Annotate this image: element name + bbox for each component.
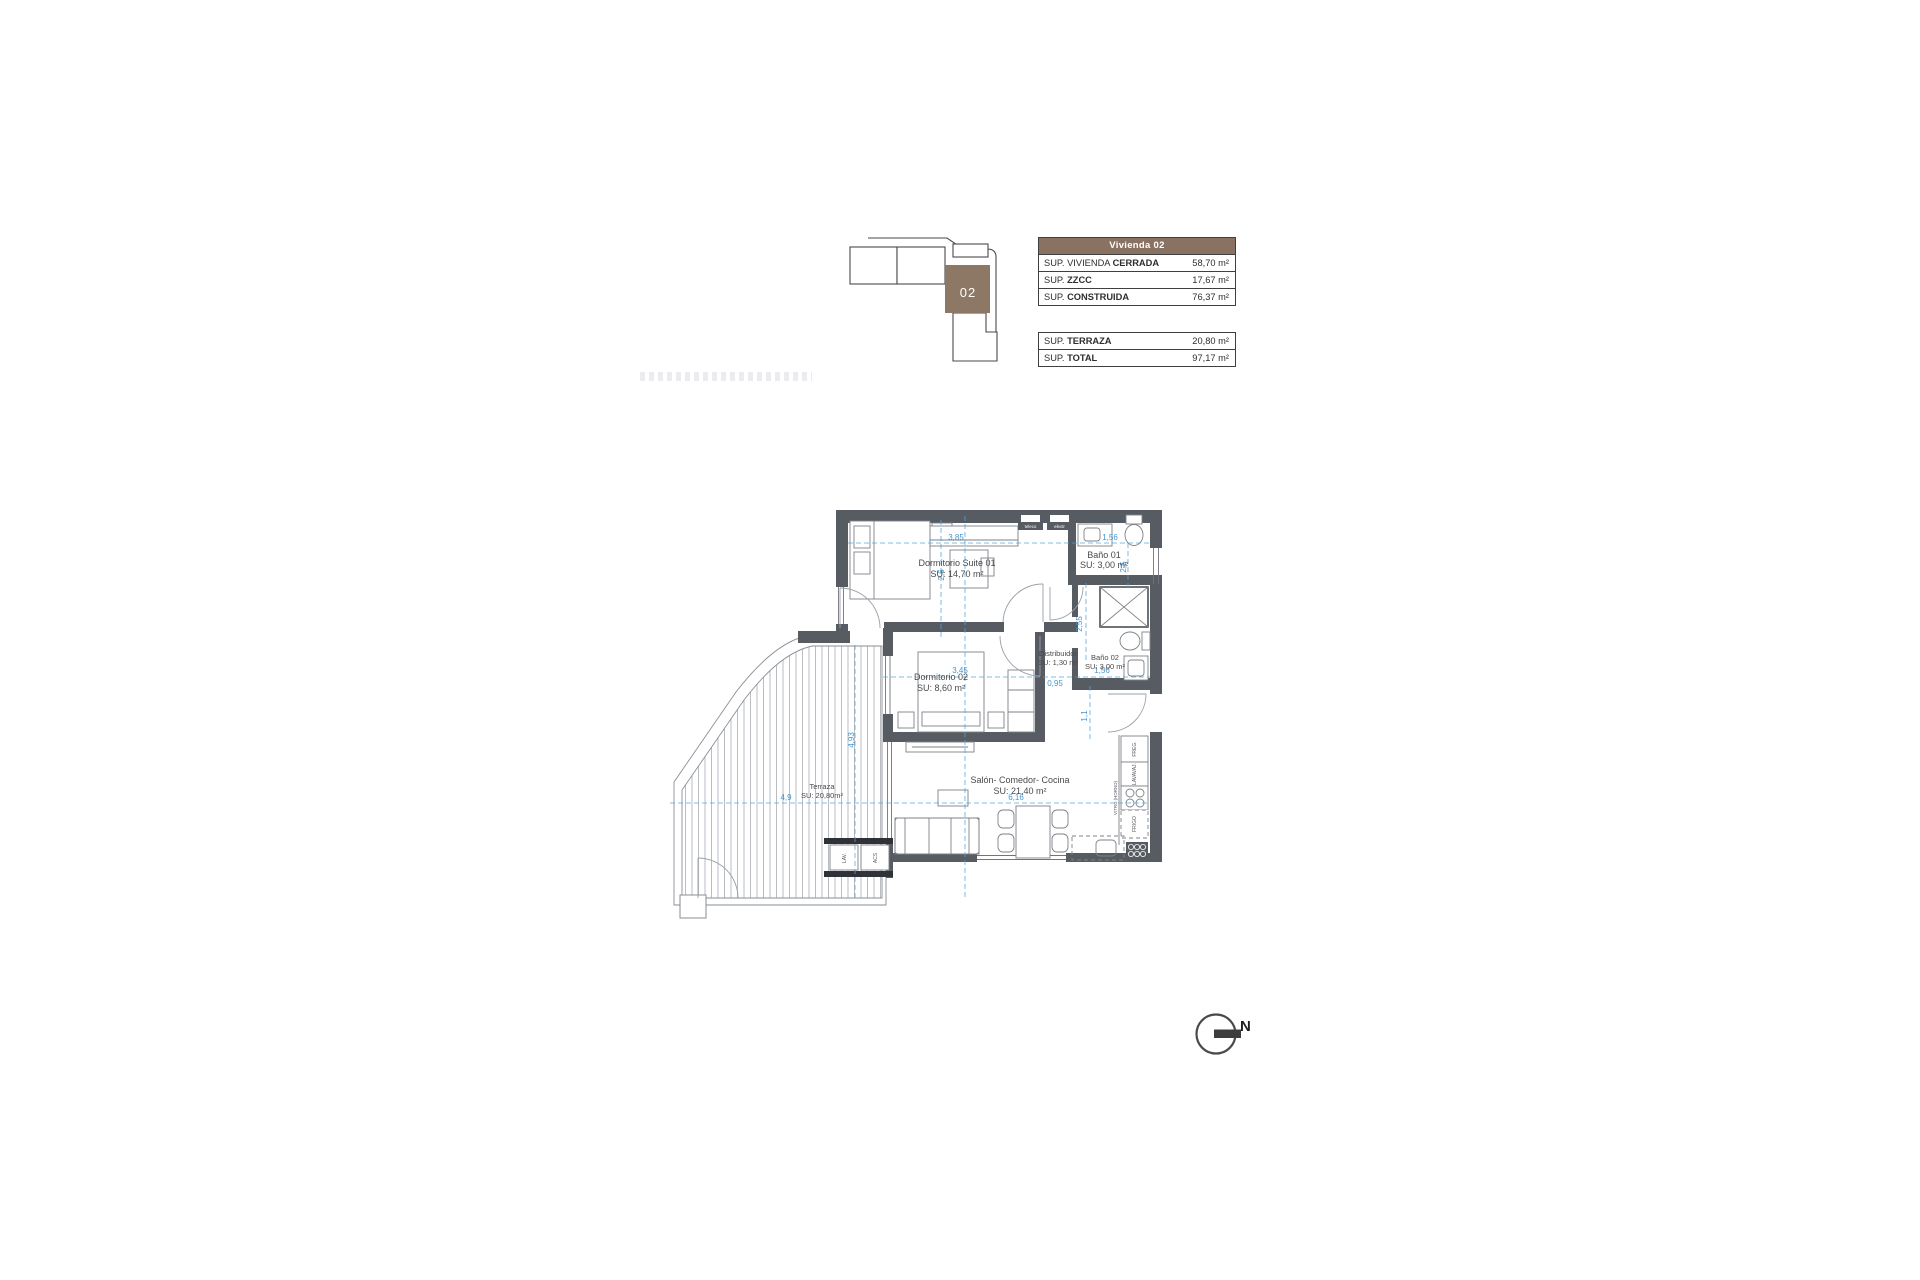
dimension-label: 4,93 [847, 732, 856, 748]
row-label: SUP. TERRAZA [1044, 336, 1112, 346]
svg-text:teleco: teleco [1025, 524, 1037, 529]
sink-bano2 [1124, 656, 1148, 680]
cabinet-electr: electr [1047, 513, 1072, 530]
svg-text:VITRO (HORNO): VITRO (HORNO) [1113, 781, 1118, 815]
dimension-label: 1,56 [1102, 533, 1118, 542]
row-value: 76,37 m² [1192, 292, 1229, 302]
room-area-suite: SU: 14,70 m² [930, 569, 983, 579]
toilet-bano1 [1125, 515, 1143, 546]
dimension-label: 3,85 [948, 533, 964, 542]
table-header: Vivienda 02 [1039, 238, 1235, 254]
table-row: SUP. CONSTRUIDA 76,37 m² [1039, 288, 1235, 305]
room-label-dorm2: Dormitorio 02 [914, 672, 968, 682]
cabinet-teleco: teleco [1018, 513, 1043, 530]
room-label-bano1: Baño 01 [1087, 550, 1121, 560]
terraza-step [680, 895, 706, 918]
row-label: SUP. VIVIENDA CERRADA [1044, 258, 1159, 268]
row-value: 20,80 m² [1192, 336, 1229, 346]
highlighted-unit-02: 02 [945, 265, 990, 313]
table-row: SUP. ZZCC 17,67 m² [1039, 271, 1235, 288]
floor-plan-sheet: 02 Vivienda 02 SUP. VIVIENDA CERRADA 58,… [0, 0, 1920, 1280]
dimension-label: 0,95 [1047, 679, 1063, 688]
room-area-bano2: SU: 3,00 m² [1085, 662, 1126, 671]
wardrobe-dorm2 [1008, 670, 1034, 732]
svg-text:electr: electr [1054, 524, 1065, 529]
kitchen-units: FREG. LAVAVAJ. VITRO (HORNO) FRIGO [1072, 735, 1148, 860]
room-label-salon: Salón- Comedor- Cocina [970, 775, 1069, 785]
shower-bano2 [1100, 587, 1148, 627]
table-row: SUP. TERRAZA 20,80 m² [1039, 333, 1235, 349]
room-label-suite: Dormitorio Suite 01 [918, 558, 995, 568]
nightstand [988, 712, 1004, 728]
closed-areas-table: Vivienda 02 SUP. VIVIENDA CERRADA 58,70 … [1038, 237, 1236, 306]
table-row: SUP. VIVIENDA CERRADA 58,70 m² [1039, 254, 1235, 271]
room-area-terraza: SU: 20,80m² [801, 791, 844, 800]
row-value: 17,67 m² [1192, 275, 1229, 285]
side-table [938, 790, 968, 806]
table-row: SUP. TOTAL 97,17 m² [1039, 349, 1235, 366]
row-label: SUP. ZZCC [1044, 275, 1092, 285]
svg-text:ACS: ACS [873, 852, 879, 863]
room-label-bano2: Baño 02 [1091, 653, 1119, 662]
unit-number: 02 [960, 285, 976, 300]
nightstand [898, 712, 914, 728]
row-value: 58,70 m² [1192, 258, 1229, 268]
room-area-bano1: SU: 3,00 m² [1080, 560, 1128, 570]
dimension-label: 1,1 [1080, 710, 1089, 722]
svg-text:LAV.: LAV. [842, 853, 848, 863]
north-arrow: N [1185, 1005, 1285, 1075]
unit-cell [953, 244, 988, 257]
row-value: 97,17 m² [1192, 353, 1229, 363]
floor-plan: teleco electr [660, 495, 1200, 955]
dining-table [998, 806, 1068, 858]
svg-text:FREG.: FREG. [1132, 741, 1138, 756]
room-label-distribuidor: Distribuidor [1039, 649, 1077, 658]
totals-table: SUP. TERRAZA 20,80 m² SUP. TOTAL 97,17 m… [1038, 332, 1236, 367]
unit-cell [953, 313, 997, 361]
dimension-label: 4,9 [780, 793, 792, 802]
unit-cell [897, 247, 945, 284]
key-plan: 02 [840, 185, 1010, 380]
dimension-label: 2,55 [1075, 616, 1084, 632]
tv-board [906, 742, 974, 752]
sofa [895, 818, 979, 854]
area-summary: Vivienda 02 SUP. VIVIENDA CERRADA 58,70 … [1038, 237, 1236, 367]
toilet-bano2 [1120, 632, 1150, 650]
laundry-pan [1126, 842, 1148, 860]
room-area-dorm2: SU: 8,60 m² [917, 683, 965, 693]
row-label: SUP. CONSTRUIDA [1044, 292, 1129, 302]
room-area-distribuidor: SU: 1,30 m² [1038, 658, 1079, 667]
row-label: SUP. TOTAL [1044, 353, 1097, 363]
svg-text:FRIGO: FRIGO [1132, 816, 1138, 832]
unit-cell [850, 247, 897, 284]
north-label: N [1240, 1018, 1251, 1035]
svg-text:LAVAVAJ.: LAVAVAJ. [1132, 763, 1138, 785]
room-area-salon: SU: 21,40 m² [993, 786, 1046, 796]
room-label-terraza: Terraza [809, 782, 835, 791]
faint-watermark-text [640, 372, 812, 381]
